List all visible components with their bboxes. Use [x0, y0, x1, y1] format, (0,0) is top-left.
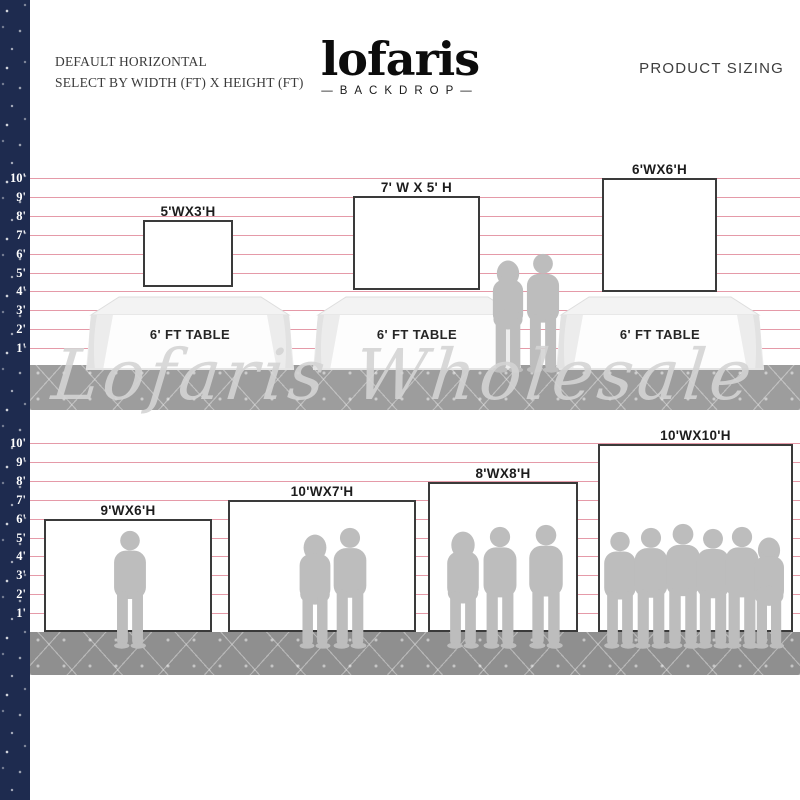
ruler-foot-label: 6' [0, 248, 26, 261]
table-label: 6' FT TABLE [85, 327, 295, 342]
backdrop-size-label: 6'WX6'H [632, 162, 687, 177]
ruler-foot-label: 3' [0, 569, 26, 582]
table-label: 6' FT TABLE [555, 327, 765, 342]
ruler-foot-label: 10' [0, 172, 26, 185]
ruler-foot-label: 3' [0, 304, 26, 317]
ruler-foot-label: 1' [0, 607, 26, 620]
backdrop-size-label: 5'WX3'H [160, 204, 215, 219]
ruler-foot-label: 5' [0, 267, 26, 280]
ruler-foot-label: 4' [0, 550, 26, 563]
ruler-foot-label: 1' [0, 342, 26, 355]
table: 6' FT TABLE [312, 293, 522, 373]
product-sizing-page: DEFAULT HORIZONTAL SELECT BY WIDTH (FT) … [0, 0, 800, 800]
ruler-foot-label: 6' [0, 513, 26, 526]
ruler-foot-label: 2' [0, 588, 26, 601]
page-title: PRODUCT SIZING [639, 60, 784, 77]
backdrop-6wx6h: 6'WX6'H [602, 178, 717, 292]
backdrop-size-label: 9'WX6'H [100, 503, 155, 518]
backdrop-8wx8h: 8'WX8'H [428, 482, 578, 632]
backdrop-size-label: 10'WX7'H [291, 484, 354, 499]
backdrop-5wx3h: 5'WX3'H [143, 220, 233, 287]
table: 6' FT TABLE [555, 293, 765, 373]
left-ruler-strip [0, 0, 30, 800]
backdrop-7wx5h: 7' W X 5' H [353, 196, 480, 290]
ruler-foot-label: 8' [0, 475, 26, 488]
ground-band [30, 632, 800, 675]
backdrop-size-label: 7' W X 5' H [381, 180, 452, 195]
backdrop-10wx10h: 10'WX10'H [598, 444, 793, 632]
ruler-foot-label: 8' [0, 210, 26, 223]
ruler-foot-label: 10' [0, 437, 26, 450]
ruler-foot-label: 9' [0, 191, 26, 204]
backdrop-9wx6h: 9'WX6'H [44, 519, 212, 632]
table-label: 6' FT TABLE [312, 327, 522, 342]
table: 6' FT TABLE [85, 293, 295, 373]
ruler-foot-label: 2' [0, 323, 26, 336]
brand-logo-subtitle: —BACKDROP— [0, 85, 800, 97]
backdrop-size-label: 10'WX10'H [660, 428, 731, 443]
backdrop-size-label: 8'WX8'H [475, 466, 530, 481]
ruler-foot-label: 7' [0, 494, 26, 507]
ruler-foot-label: 9' [0, 456, 26, 469]
backdrop-10wx7h: 10'WX7'H [228, 500, 416, 632]
ruler-foot-label: 7' [0, 229, 26, 242]
ruler-foot-label: 4' [0, 285, 26, 298]
ruler-foot-label: 5' [0, 532, 26, 545]
